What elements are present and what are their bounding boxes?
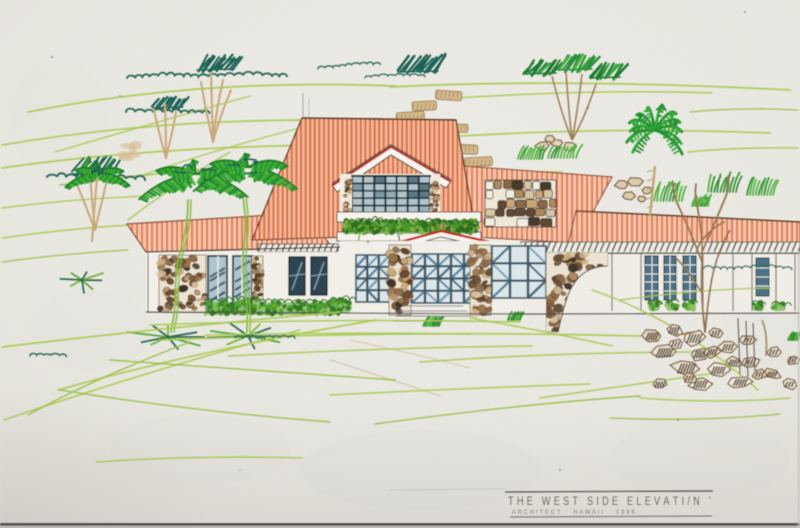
svg-text:ARCHITECT HAWAII 1996.: ARCHITECT HAWAII 1996. <box>512 510 640 516</box>
svg-text:THE WEST SIDE ELEVATI/N ’: THE WEST SIDE ELEVATI/N ’ <box>508 495 714 509</box>
